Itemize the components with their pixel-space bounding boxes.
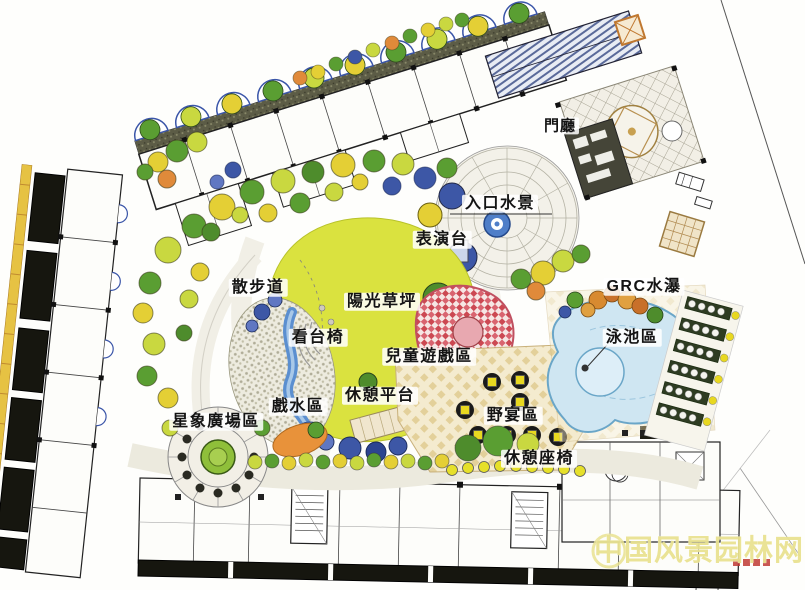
site-furniture: [672, 172, 718, 209]
label-children-play: 兒童遊戲區: [382, 348, 476, 366]
label-picnic-area: 野宴區: [484, 407, 543, 425]
label-sun-lawn: 陽光草坪: [344, 293, 420, 311]
label-entrance-water: 入口水景: [462, 195, 538, 213]
label-star-plaza: 星象廣場區: [169, 413, 263, 431]
label-grandstand-chairs: 看台椅: [289, 329, 348, 347]
label-stage: 表演台: [413, 231, 472, 249]
label-walkway: 散步道: [229, 279, 288, 297]
watermark: 中国风景园林网: [594, 533, 804, 569]
site-plan-canvas: 門廳 入口水景 表演台 散步道 陽光草坪 GRC水瀑 看台椅 兒童遊戲區 泳池區…: [0, 0, 805, 590]
pergola-square: [660, 212, 705, 257]
label-grc-waterfall: GRC水瀑: [603, 278, 684, 296]
left-building-band: [0, 164, 131, 578]
small-round-planter: [662, 121, 682, 141]
label-pool-area: 泳池區: [603, 329, 662, 347]
label-lobby: 門廳: [541, 117, 579, 134]
label-rest-platform: 休憩平台: [342, 387, 418, 405]
label-water-play: 戲水區: [269, 398, 328, 416]
label-rest-seats: 休憩座椅: [501, 450, 577, 468]
